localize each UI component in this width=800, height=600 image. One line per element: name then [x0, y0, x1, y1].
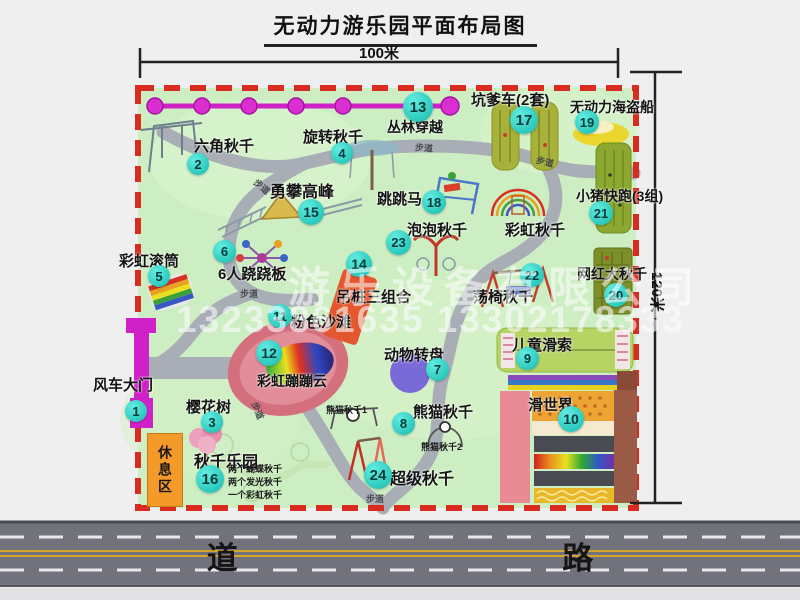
road-label: 道 路 [0, 533, 800, 578]
swing-park-note-1: 两个蝴蝶秋千 [228, 463, 282, 475]
badge-jumping-horse: 18 [422, 190, 446, 214]
label-hexagon-swing: 六角秋千 [194, 135, 254, 156]
label-peak-climbing: 勇攀高峰 [270, 178, 334, 202]
walkway-label: 步道 [415, 140, 434, 154]
label-rainbow-roller: 彩虹滚筒 [119, 250, 179, 271]
badge-peak-climbing: 15 [298, 199, 324, 225]
label-bubble-swing: 泡泡秋千 [407, 219, 467, 240]
badge-swing-park: 16 [196, 465, 224, 493]
badge-super-swing: 24 [364, 461, 392, 489]
label-rainbow-bounce-cloud: 彩虹蹦蹦云 [257, 371, 327, 391]
badge-bubble-swing: 23 [386, 230, 411, 255]
label-panda-swing: 熊猫秋千 [413, 401, 473, 422]
badge-slide-world: 10 [558, 406, 584, 432]
badge-panda-swing: 8 [392, 412, 415, 435]
badge-six-person-seesaw: 6 [213, 240, 236, 263]
label-panda-swing-2: 熊猫秋千2 [421, 441, 462, 453]
watermark-phone: 13233861635 13302178333 [176, 299, 685, 341]
label-rainbow-swing: 彩虹秋千 [505, 219, 565, 240]
badge-piggy-run: 21 [589, 201, 613, 225]
rest-area-label: 休息区 [155, 445, 175, 496]
label-kengdie-car: 坑爹车(2套) [471, 89, 549, 110]
badge-kengdie-car: 17 [510, 106, 538, 134]
park-map-canvas: 无动力游乐园平面布局图 100米 120米 休息区 步道 步道 步道 步道 步道… [0, 0, 800, 600]
badge-pirate-ship: 19 [575, 110, 599, 134]
rest-area: 休息区 [147, 433, 183, 507]
badge-jungle-crossing: 13 [403, 92, 433, 122]
badge-hexagon-swing: 2 [187, 153, 209, 175]
badge-cherry-tree: 3 [201, 411, 223, 433]
walkway-label: 步道 [366, 492, 384, 505]
label-six-person-seesaw: 6人跷跷板 [218, 263, 286, 284]
swing-park-note-3: 一个彩虹秋千 [228, 489, 282, 501]
label-panda-swing-1: 熊猫秋千1 [326, 404, 367, 416]
label-piggy-run: 小猪快跑(3组) [576, 186, 663, 206]
badge-kids-zipline: 9 [516, 347, 539, 370]
label-windmill-gate: 风车大门 [93, 374, 153, 395]
swing-park-note-2: 两个发光秋千 [228, 476, 282, 488]
badge-rainbow-roller: 5 [148, 265, 170, 287]
gate-road [146, 357, 238, 379]
width-dimension-label: 100米 [140, 42, 618, 63]
badge-windmill-gate: 1 [125, 400, 147, 422]
label-rotating-swing: 旋转秋千 [303, 126, 363, 147]
label-jumping-horse: 跳跳马 [377, 188, 422, 209]
badge-animal-carousel: 7 [426, 358, 449, 381]
badge-rotating-swing: 4 [331, 142, 353, 164]
badge-rainbow-bounce-cloud: 12 [256, 340, 282, 366]
label-super-swing: 超级秋千 [390, 465, 454, 489]
